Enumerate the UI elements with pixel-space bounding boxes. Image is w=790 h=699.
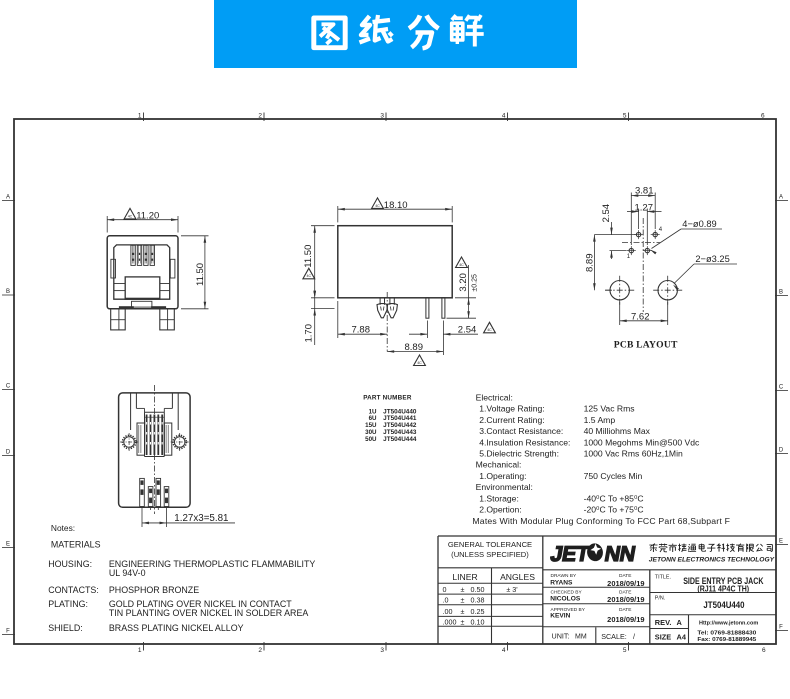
- svg-text:11.50: 11.50: [303, 245, 314, 268]
- svg-text:1.5 Amp: 1.5 Amp: [584, 415, 616, 425]
- svg-text:5.Dielectric Strength:: 5.Dielectric Strength:: [479, 449, 559, 459]
- svg-text:1: 1: [627, 254, 631, 260]
- svg-text:UL 94V-0: UL 94V-0: [109, 568, 146, 578]
- svg-text:7.62: 7.62: [631, 311, 650, 322]
- svg-text:18.10: 18.10: [384, 200, 408, 211]
- svg-text:Notes:: Notes:: [51, 523, 75, 533]
- svg-text:6U: 6U: [369, 415, 377, 422]
- svg-text:0.25: 0.25: [471, 607, 485, 616]
- svg-text:4−ø0.89: 4−ø0.89: [682, 219, 716, 229]
- svg-text:REV.: REV.: [655, 618, 672, 627]
- svg-text:2018/09/19: 2018/09/19: [607, 615, 644, 624]
- svg-text:A: A: [677, 618, 683, 627]
- svg-text:D: D: [6, 450, 11, 456]
- svg-text:.0: .0: [443, 596, 449, 605]
- svg-text:1.Storage:: 1.Storage:: [479, 493, 519, 503]
- svg-text:4: 4: [502, 113, 506, 120]
- svg-text:(RJ11 4P4C TH): (RJ11 4P4C TH): [697, 584, 749, 594]
- svg-text:1: 1: [138, 113, 142, 120]
- svg-text:TITLE.: TITLE.: [655, 575, 671, 581]
- svg-text:±0.25: ±0.25: [472, 274, 479, 292]
- svg-text:TIN PLANTING OVER NICKEL IN SO: TIN PLANTING OVER NICKEL IN SOLDER AREA: [109, 608, 308, 618]
- svg-text:JT504U440: JT504U440: [703, 599, 744, 610]
- svg-text:SIZE: SIZE: [655, 633, 671, 642]
- svg-text:NN: NN: [603, 541, 637, 566]
- svg-text:LINER: LINER: [452, 572, 477, 582]
- svg-text:1.70: 1.70: [303, 324, 314, 343]
- svg-text:A: A: [779, 195, 783, 201]
- svg-text:E: E: [779, 539, 783, 545]
- svg-text:4: 4: [659, 227, 663, 233]
- svg-text:2.54: 2.54: [458, 325, 477, 336]
- svg-text:PART NUMBER: PART NUMBER: [363, 394, 412, 401]
- svg-text:P/N.: P/N.: [655, 596, 665, 602]
- svg-text:5: 5: [623, 113, 627, 120]
- svg-text:11.20: 11.20: [136, 210, 159, 221]
- svg-text:Http://www.jetonn.com: Http://www.jetonn.com: [699, 621, 758, 627]
- svg-text:3: 3: [380, 113, 384, 120]
- svg-text:±: ±: [461, 585, 465, 594]
- svg-text:Mates With Modular Plug Confor: Mates With Modular Plug Conforming To FC…: [472, 516, 730, 526]
- svg-text:3.20: 3.20: [458, 273, 469, 292]
- svg-text:F: F: [6, 629, 10, 635]
- svg-text:2018/09/19: 2018/09/19: [607, 595, 644, 604]
- svg-text:NICOLOS: NICOLOS: [550, 596, 581, 603]
- svg-text:1.Operating:: 1.Operating:: [479, 471, 526, 481]
- svg-text:4C: 4C: [306, 274, 311, 278]
- svg-text:4: 4: [502, 647, 506, 654]
- svg-text:(UNLESS SPECIFIED): (UNLESS SPECIFIED): [451, 550, 529, 559]
- svg-text:750 Cycles Min: 750 Cycles Min: [584, 471, 643, 481]
- svg-text:PHOSPHOR BRONZE: PHOSPHOR BRONZE: [109, 585, 199, 595]
- svg-text:125 Vac Rms: 125 Vac Rms: [584, 404, 635, 414]
- svg-text:1000 Vac Rms 60Hz,1Min: 1000 Vac Rms 60Hz,1Min: [584, 449, 683, 459]
- svg-text:-40⁰C To +85⁰C: -40⁰C To +85⁰C: [584, 493, 644, 503]
- svg-text:-20⁰C To +75⁰C: -20⁰C To +75⁰C: [584, 505, 644, 515]
- svg-text:±: ±: [461, 607, 465, 616]
- svg-text:KEVIN: KEVIN: [550, 613, 570, 620]
- svg-text:± 3': ± 3': [506, 585, 518, 594]
- svg-text:E: E: [6, 542, 10, 548]
- svg-text:DRAWN BY: DRAWN BY: [551, 573, 577, 579]
- svg-text:1.27x3=5.81: 1.27x3=5.81: [174, 513, 228, 524]
- svg-text:D: D: [779, 448, 784, 454]
- svg-text:Fax: 0769-81889945: Fax: 0769-81889945: [697, 637, 756, 643]
- svg-text:3.81: 3.81: [635, 186, 654, 197]
- svg-text:ANGLES: ANGLES: [500, 572, 535, 582]
- svg-text:/: /: [633, 632, 635, 641]
- svg-text:UNIT:: UNIT:: [552, 631, 570, 640]
- svg-text:F: F: [779, 625, 783, 631]
- svg-text:6: 6: [762, 647, 766, 654]
- svg-text:2.Opertion:: 2.Opertion:: [479, 505, 522, 515]
- svg-text:8.89: 8.89: [585, 254, 596, 273]
- svg-text:2.54: 2.54: [601, 204, 612, 223]
- svg-text:DATE: DATE: [619, 607, 631, 613]
- svg-text:B: B: [6, 289, 10, 295]
- svg-text:1.27: 1.27: [635, 202, 654, 213]
- svg-text:2−ø3.25: 2−ø3.25: [695, 254, 729, 264]
- svg-text:PCB LAYOUT: PCB LAYOUT: [614, 340, 678, 351]
- svg-text:1.Voltage Rating:: 1.Voltage Rating:: [479, 404, 544, 414]
- svg-text:8.89: 8.89: [405, 342, 424, 353]
- svg-text:4C: 4C: [128, 214, 133, 218]
- svg-text:SHIELD:: SHIELD:: [48, 623, 83, 633]
- svg-text:A4: A4: [677, 633, 687, 642]
- svg-text:JT504U442: JT504U442: [383, 422, 417, 429]
- svg-text:2: 2: [258, 113, 262, 120]
- svg-text:JET: JET: [549, 541, 592, 566]
- svg-text:PLATING:: PLATING:: [48, 599, 88, 609]
- svg-text:2.Current Rating:: 2.Current Rating:: [479, 415, 544, 425]
- svg-text:4C: 4C: [375, 204, 380, 208]
- svg-text:RYANS: RYANS: [550, 579, 573, 586]
- svg-text:3: 3: [380, 647, 384, 654]
- svg-text:Environmental:: Environmental:: [476, 482, 533, 492]
- svg-text:CONTACTS:: CONTACTS:: [48, 585, 99, 595]
- svg-text:40 Milliohms Max: 40 Milliohms Max: [584, 426, 651, 436]
- svg-text:SCALE:: SCALE:: [601, 632, 627, 641]
- svg-text:0.38: 0.38: [471, 596, 485, 605]
- svg-text:±: ±: [461, 617, 465, 626]
- svg-text:B: B: [779, 290, 783, 296]
- svg-text:JT504U443: JT504U443: [383, 429, 417, 436]
- svg-text:MM: MM: [575, 633, 587, 640]
- svg-text:A: A: [6, 195, 10, 201]
- svg-text:2: 2: [258, 647, 262, 654]
- svg-text:JETONN ELECTRONICS TECHNOLOGY: JETONN ELECTRONICS TECHNOLOGY: [649, 556, 775, 563]
- svg-text:JT504U444: JT504U444: [383, 436, 417, 443]
- svg-text:C: C: [779, 385, 784, 391]
- svg-text:Electrical:: Electrical:: [476, 393, 513, 403]
- svg-text:0.50: 0.50: [471, 585, 485, 594]
- svg-text:7.88: 7.88: [352, 325, 371, 336]
- svg-text:±: ±: [461, 596, 465, 605]
- svg-text:15U: 15U: [365, 422, 377, 429]
- svg-text:50U: 50U: [365, 436, 377, 443]
- svg-text:11.50: 11.50: [195, 263, 206, 286]
- svg-text:1: 1: [138, 647, 142, 654]
- svg-text:3.Contact Resistance:: 3.Contact Resistance:: [479, 426, 563, 436]
- svg-text:4C: 4C: [459, 263, 464, 267]
- svg-text:Mechanical:: Mechanical:: [476, 460, 522, 470]
- svg-text:Tel: 0769-81888430: Tel: 0769-81888430: [697, 631, 756, 637]
- svg-text:30U: 30U: [365, 429, 377, 436]
- svg-text:5: 5: [623, 647, 627, 654]
- svg-text:BRASS PLATING NICKEL ALLOY: BRASS PLATING NICKEL ALLOY: [109, 623, 244, 633]
- svg-text:MATERIALS: MATERIALS: [51, 539, 101, 549]
- svg-text:2018/09/19: 2018/09/19: [607, 579, 644, 588]
- svg-text:.000: .000: [443, 617, 457, 626]
- svg-text:4.Insulation Resistance:: 4.Insulation Resistance:: [479, 437, 570, 447]
- svg-text:HOUSING:: HOUSING:: [48, 559, 92, 569]
- svg-text:0.10: 0.10: [471, 617, 485, 626]
- svg-text:6: 6: [761, 113, 765, 120]
- svg-text:C: C: [6, 384, 11, 390]
- svg-text:1000 Megohms Min@500 Vdc: 1000 Megohms Min@500 Vdc: [584, 437, 700, 447]
- svg-text:GENERAL TOLERANCE: GENERAL TOLERANCE: [448, 540, 532, 549]
- svg-text:4C: 4C: [487, 328, 492, 332]
- svg-text:4C: 4C: [417, 361, 422, 365]
- svg-text:JT504U441: JT504U441: [383, 415, 417, 422]
- svg-text:.00: .00: [443, 607, 453, 616]
- svg-text:0: 0: [443, 585, 447, 594]
